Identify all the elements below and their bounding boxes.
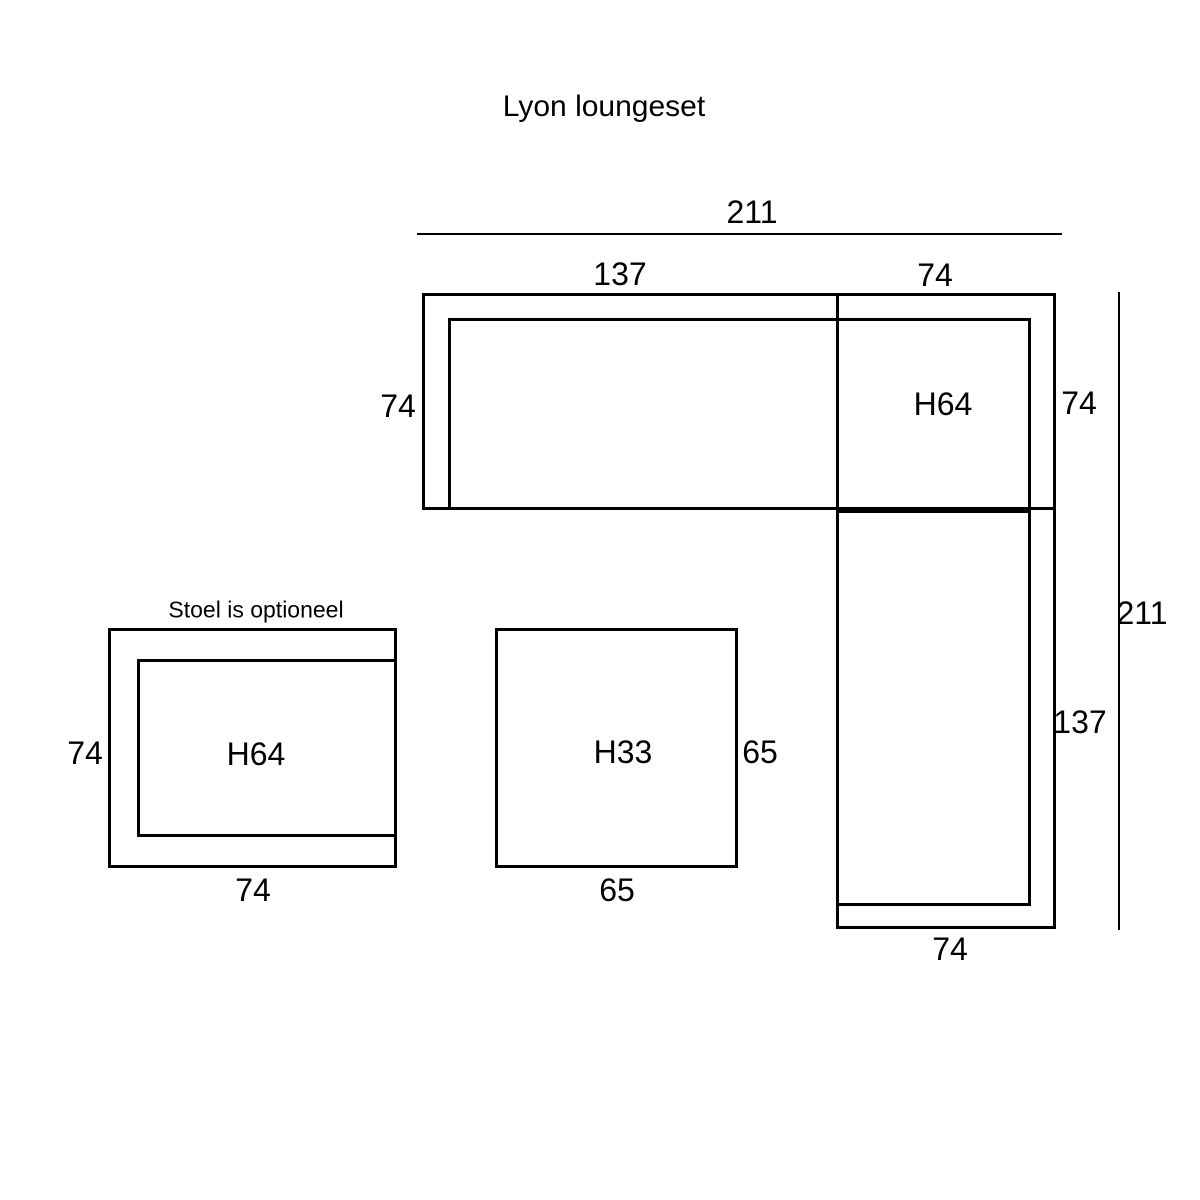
sofa-inner-cushion-vertical <box>836 510 1031 906</box>
table-right-depth-label: 65 <box>742 736 778 768</box>
table-height-label: H33 <box>594 736 653 768</box>
chair-bottom-width-label: 74 <box>235 874 271 906</box>
sofa-bottom-width-label: 74 <box>932 933 968 965</box>
sofa-seat-height-label: H64 <box>914 388 973 420</box>
diagram-canvas: Lyon loungeset 211 137 74 74 H64 74 211 … <box>0 0 1200 1200</box>
sofa-corner-section-width-label: 74 <box>917 259 953 291</box>
sofa-total-width-dimension-line <box>417 233 1062 235</box>
table-bottom-width-label: 65 <box>599 874 635 906</box>
chair-seat-height-label: H64 <box>227 738 286 770</box>
sofa-total-width-label: 211 <box>726 196 777 228</box>
sofa-left-depth-label: 74 <box>380 390 416 422</box>
sofa-seat-section-width-label: 137 <box>593 258 646 290</box>
chair-left-depth-label: 74 <box>67 737 103 769</box>
chair-optional-note: Stoel is optioneel <box>168 599 343 622</box>
diagram-title: Lyon loungeset <box>503 92 705 122</box>
sofa-side-section-length-label: 137 <box>1053 706 1106 738</box>
sofa-total-depth-label: 211 <box>1116 597 1167 629</box>
sofa-right-depth-label: 74 <box>1061 387 1097 419</box>
